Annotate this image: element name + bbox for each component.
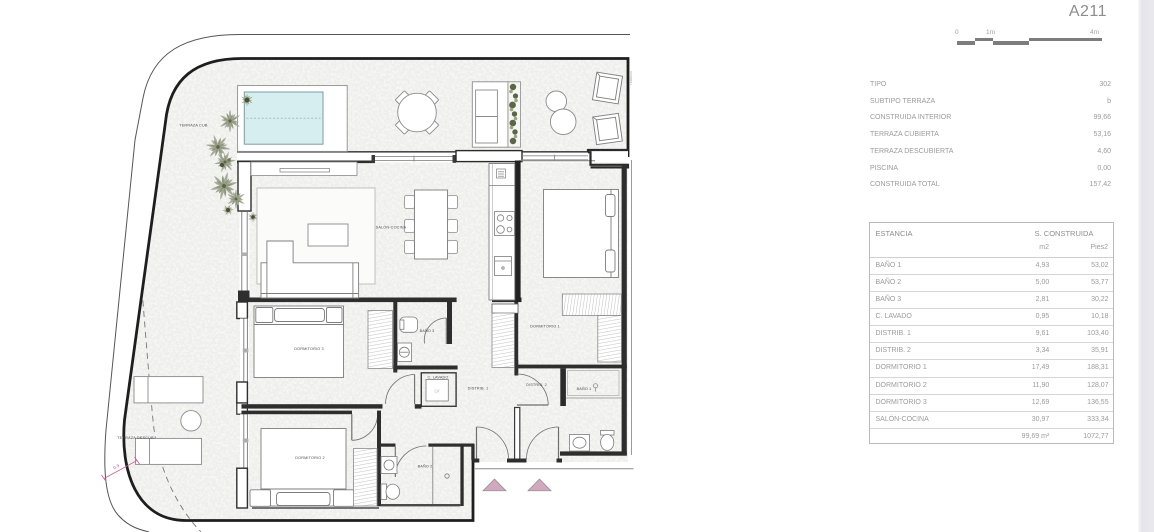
svg-text:DISTRIB. 2: DISTRIB. 2 [526,383,547,387]
svg-text:TERRAZA DESCUB.: TERRAZA DESCUB. [117,436,155,440]
svg-text:DISTRIB. 1: DISTRIB. 1 [468,387,489,391]
svg-text:DORMITORIO 1: DORMITORIO 1 [530,325,560,329]
svg-text:BAÑO 1: BAÑO 1 [577,386,592,391]
svg-text:BAÑO 2: BAÑO 2 [418,464,433,469]
svg-text:SALÓN-COCINA: SALÓN-COCINA [376,225,407,230]
svg-text:C. LAVADO: C. LAVADO [427,376,448,380]
svg-text:DORMITORIO 2: DORMITORIO 2 [295,456,325,460]
svg-text:DORMITORIO 3: DORMITORIO 3 [294,347,324,351]
svg-text:LV: LV [434,389,439,394]
svg-text:0,9: 0,9 [112,463,120,471]
svg-text:BAÑO 3: BAÑO 3 [420,328,435,333]
svg-text:TERRAZA CUB.: TERRAZA CUB. [179,124,208,128]
svg-text:TERRAZA: TERRAZA [629,71,633,85]
